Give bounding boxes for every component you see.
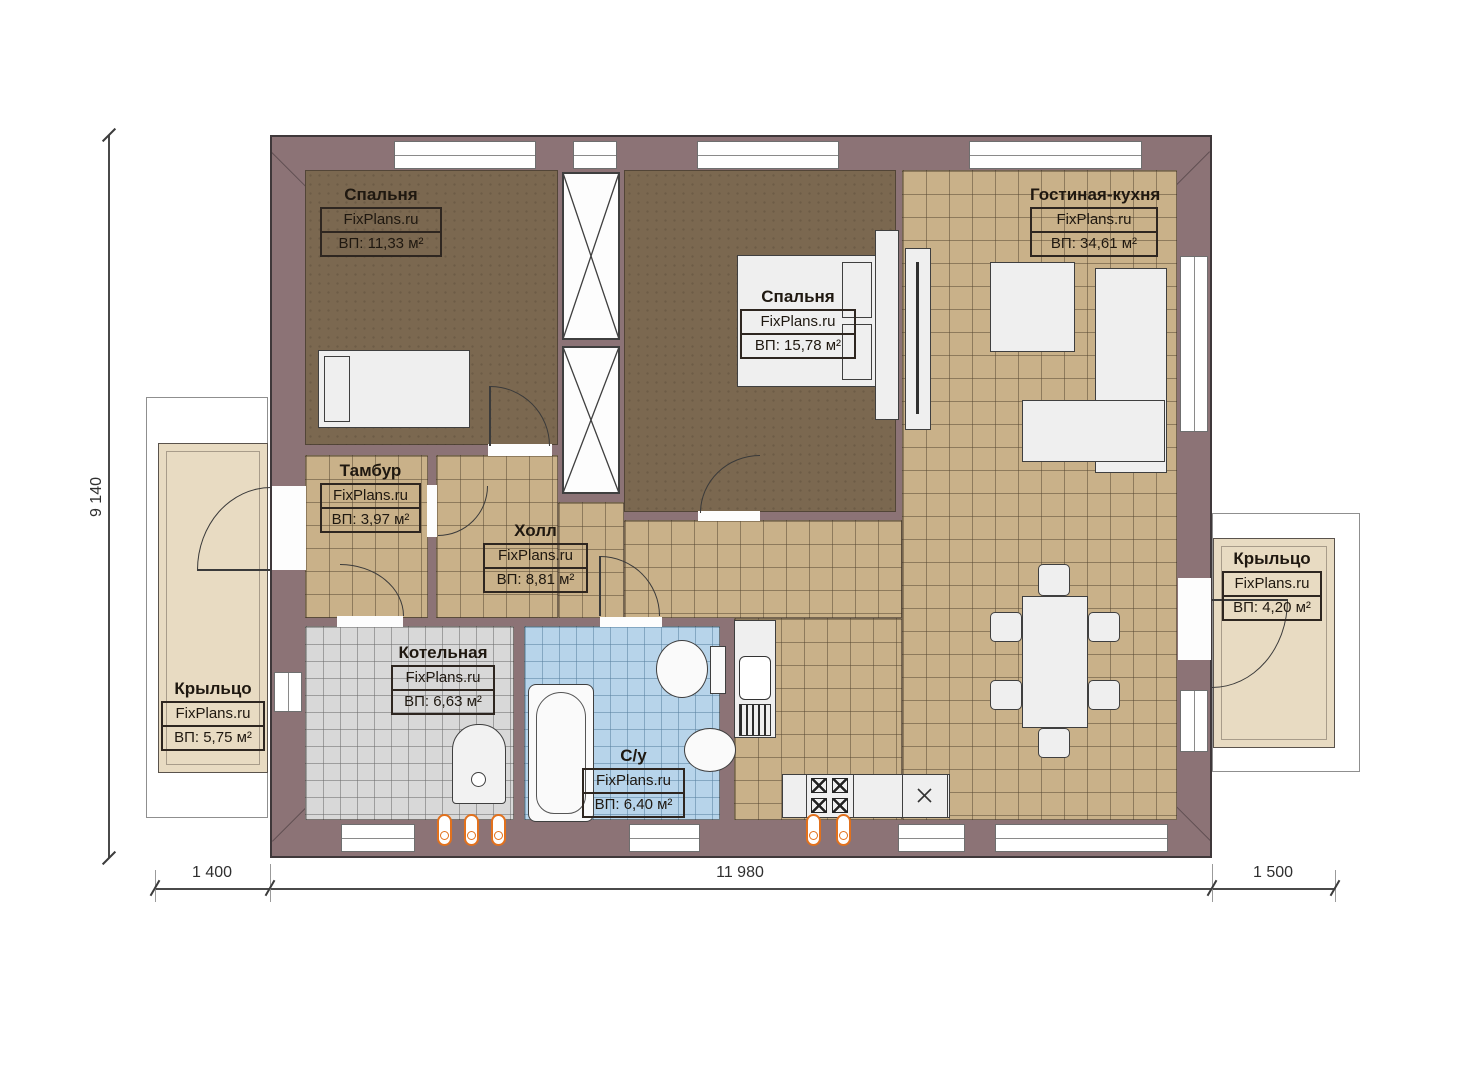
sofa-corner-chaise <box>1022 400 1165 462</box>
radiator <box>437 814 452 846</box>
brand-watermark: FixPlans.ru <box>1222 571 1322 597</box>
bathroom-door-opening <box>600 617 662 627</box>
porch-right-label: Крыльцо FixPlans.ru ВП: 4,20 м² <box>1222 550 1322 621</box>
brand-watermark: FixPlans.ru <box>582 768 685 794</box>
hall-floor <box>624 520 902 618</box>
bed-headboard-panel <box>875 230 899 420</box>
room-name: Спальня <box>320 186 442 205</box>
boiler-door-opening <box>337 616 403 627</box>
boiler-window <box>341 824 415 852</box>
tambour-hall-door-opening <box>427 485 437 537</box>
room-area: ВП: 3,97 м² <box>320 507 421 533</box>
bed-pillow <box>324 356 350 422</box>
hall-label: Холл FixPlans.ru ВП: 8,81 м² <box>483 522 588 593</box>
toilet-bowl <box>656 640 708 698</box>
boiler-tank <box>452 724 506 804</box>
dimension-label-porch-left: 1 400 <box>172 864 252 882</box>
dining-chair <box>990 612 1022 642</box>
room-area: ВП: 15,78 м² <box>740 333 856 359</box>
dimension-label-house-width: 11 980 <box>700 864 780 882</box>
room-name: Спальня <box>740 288 856 307</box>
tv-screen <box>916 262 919 414</box>
wall-vent-shaft <box>573 141 617 169</box>
dining-chair <box>1088 680 1120 710</box>
living-window-right-lower <box>1180 690 1208 752</box>
stove <box>806 774 854 818</box>
brand-watermark: FixPlans.ru <box>320 483 421 509</box>
room-area: ВП: 8,81 м² <box>483 567 588 593</box>
room-name: Тамбур <box>320 462 421 481</box>
radiator <box>806 814 821 846</box>
living-window-right <box>1180 256 1208 432</box>
tambour-label: Тамбур FixPlans.ru ВП: 3,97 м² <box>320 462 421 533</box>
floor-plan: 9 140 1 400 11 980 1 500 <box>0 0 1473 1080</box>
boiler-valve <box>471 772 486 787</box>
living-window-bottom <box>995 824 1168 852</box>
wardrobe-closet-bottom <box>562 346 620 494</box>
radiator <box>491 814 506 846</box>
kitchen-sink <box>739 656 771 700</box>
radiator <box>836 814 851 846</box>
brand-watermark: FixPlans.ru <box>161 701 265 727</box>
bedroom1-window <box>394 141 536 169</box>
dining-chair <box>1038 564 1070 596</box>
bedroom2-window <box>697 141 839 169</box>
dining-table <box>1022 596 1088 728</box>
kitchen-window <box>898 824 965 852</box>
wardrobe-closet-top <box>562 172 620 340</box>
living-window-top <box>969 141 1142 169</box>
bedroom1-door-leaf <box>489 386 491 446</box>
bathroom-label: С/у FixPlans.ru ВП: 6,40 м² <box>582 747 685 818</box>
room-area: ВП: 6,63 м² <box>391 689 495 715</box>
living-kitchen-label: Гостиная-кухня FixPlans.ru ВП: 34,61 м² <box>1030 186 1158 257</box>
dimension-label-height: 9 140 <box>88 467 108 527</box>
bathtub-basin <box>536 692 586 814</box>
radiator <box>464 814 479 846</box>
room-area: ВП: 6,40 м² <box>582 792 685 818</box>
room-area: ВП: 5,75 м² <box>161 725 265 751</box>
toilet-tank <box>710 646 726 694</box>
entry-door-leaf <box>197 569 271 571</box>
brand-watermark: FixPlans.ru <box>391 665 495 691</box>
kitchen-dish-drainer <box>739 704 771 736</box>
porch-right-door-opening <box>1178 578 1211 660</box>
boiler-window-left <box>274 672 302 712</box>
bathroom-window <box>629 824 700 852</box>
room-area: ВП: 11,33 м² <box>320 231 442 257</box>
bedroom1-label: Спальня FixPlans.ru ВП: 11,33 м² <box>320 186 442 257</box>
bedroom2-label: Спальня FixPlans.ru ВП: 15,78 м² <box>740 288 856 359</box>
room-name: Крыльцо <box>161 680 265 699</box>
room-name: Холл <box>483 522 588 541</box>
brand-watermark: FixPlans.ru <box>740 309 856 335</box>
porch-left-label: Крыльцо FixPlans.ru ВП: 5,75 м² <box>161 680 265 751</box>
coffee-table <box>990 262 1075 352</box>
dining-chair <box>990 680 1022 710</box>
dining-chair <box>1088 612 1120 642</box>
washing-machine <box>902 774 948 818</box>
bathroom-door-leaf <box>599 556 601 616</box>
dimension-label-porch-right: 1 500 <box>1233 864 1313 882</box>
room-name: Крыльцо <box>1222 550 1322 569</box>
room-area: ВП: 34,61 м² <box>1030 231 1158 257</box>
washbasin <box>684 728 736 772</box>
entry-door-opening <box>272 486 306 570</box>
brand-watermark: FixPlans.ru <box>1030 207 1158 233</box>
room-area: ВП: 4,20 м² <box>1222 595 1322 621</box>
room-name: С/у <box>582 747 685 766</box>
brand-watermark: FixPlans.ru <box>483 543 588 569</box>
room-name: Котельная <box>391 644 495 663</box>
boiler-label: Котельная FixPlans.ru ВП: 6,63 м² <box>391 644 495 715</box>
room-name: Гостиная-кухня <box>1030 186 1158 205</box>
brand-watermark: FixPlans.ru <box>320 207 442 233</box>
dimension-line-left <box>108 135 110 858</box>
dining-chair <box>1038 728 1070 758</box>
dimension-line-bottom <box>155 888 1336 890</box>
